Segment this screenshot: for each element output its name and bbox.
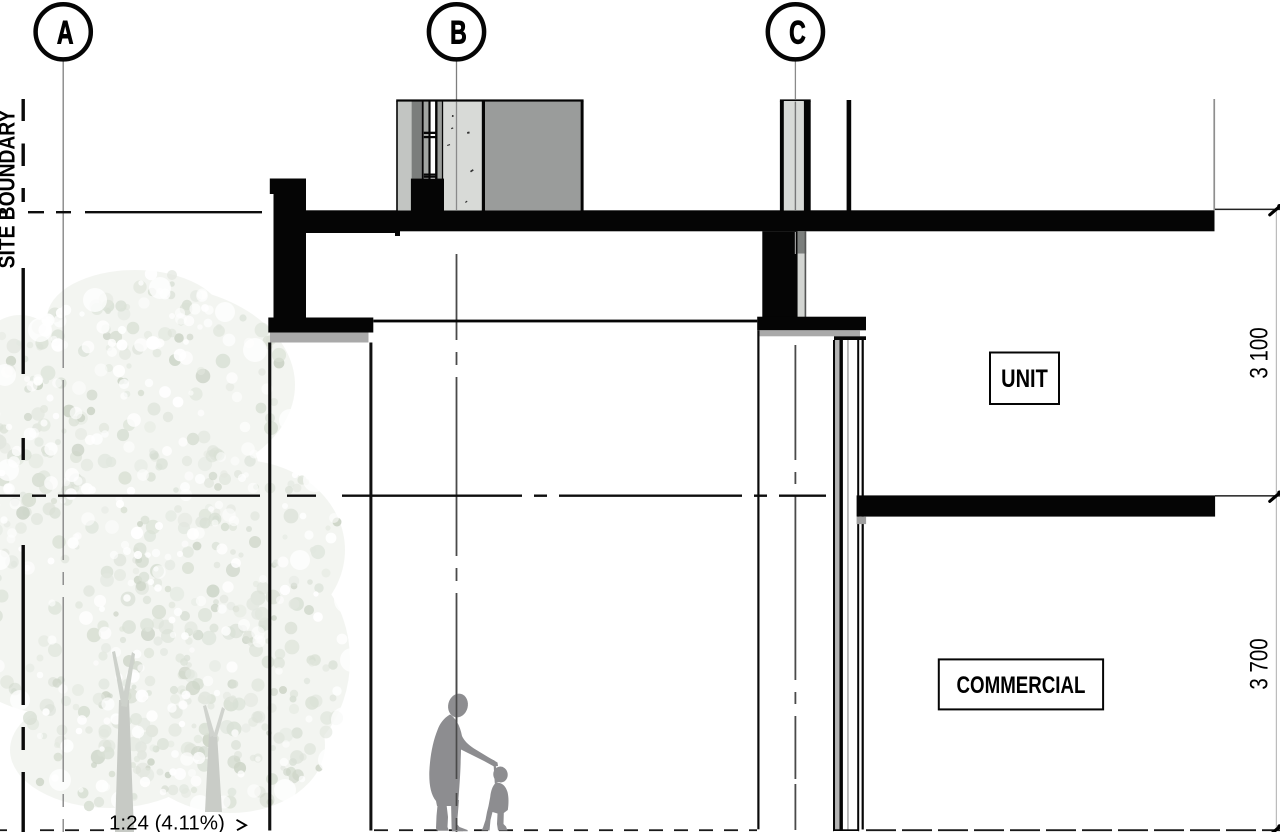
svg-text:A: A bbox=[57, 15, 74, 51]
svg-text:3 100: 3 100 bbox=[1245, 327, 1273, 378]
svg-text:B: B bbox=[450, 15, 467, 51]
svg-text:1:24 (4.11%): 1:24 (4.11%) bbox=[109, 812, 225, 832]
svg-text:3 700: 3 700 bbox=[1245, 638, 1273, 689]
svg-text:UNIT: UNIT bbox=[1001, 365, 1048, 393]
svg-text:SITE BOUNDARY: SITE BOUNDARY bbox=[0, 110, 20, 269]
svg-text:C: C bbox=[789, 15, 806, 51]
svg-text:COMMERCIAL: COMMERCIAL bbox=[957, 672, 1086, 699]
